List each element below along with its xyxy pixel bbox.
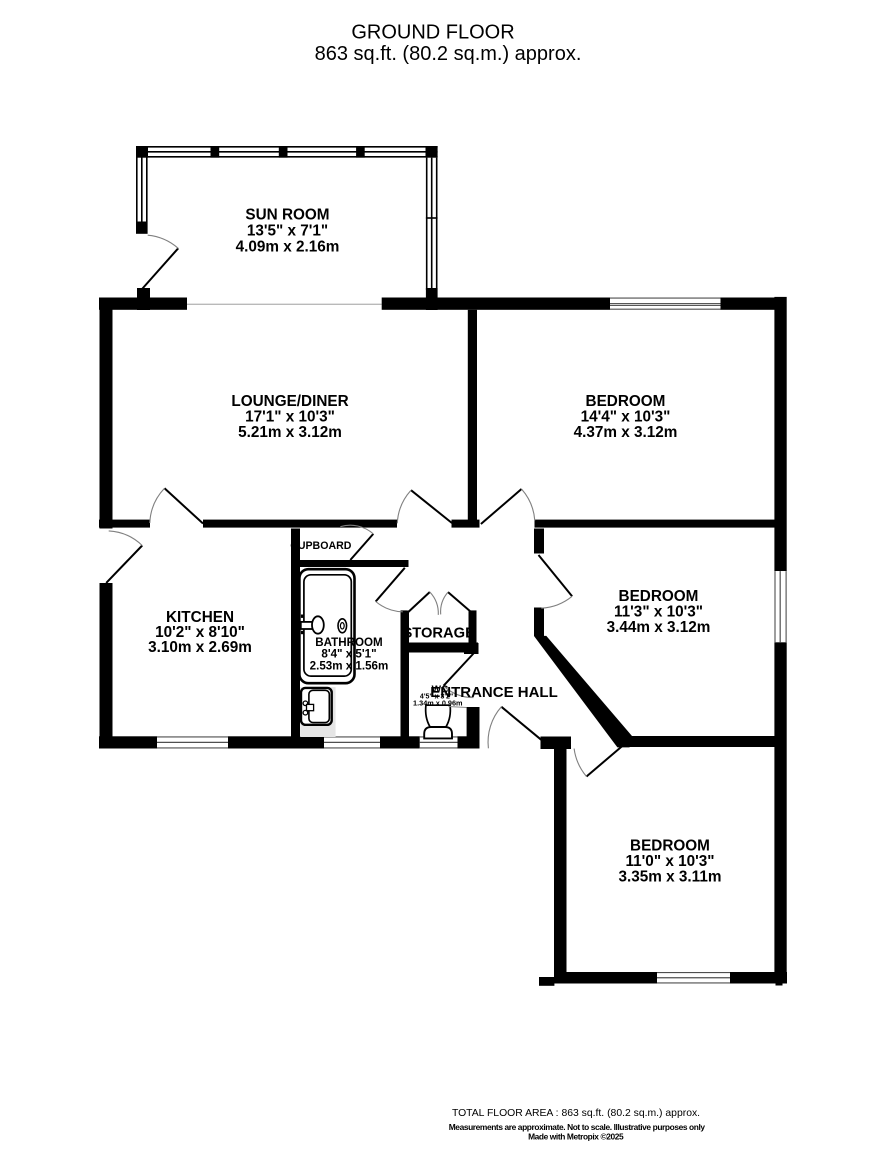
svg-text:STORAGE: STORAGE xyxy=(403,625,476,641)
svg-text:CUPBOARD: CUPBOARD xyxy=(290,540,352,552)
svg-text:11'3" x 10'3": 11'3" x 10'3" xyxy=(614,604,703,621)
svg-text:1.34m x 0.96m: 1.34m x 0.96m xyxy=(413,698,463,707)
svg-text:BEDROOM: BEDROOM xyxy=(630,838,710,855)
svg-text:TOTAL FLOOR AREA : 863 sq.ft.: TOTAL FLOOR AREA : 863 sq.ft. (80.2 sq.m… xyxy=(452,1108,700,1119)
svg-text:3.10m x 2.69m: 3.10m x 2.69m xyxy=(148,639,252,656)
svg-text:BEDROOM: BEDROOM xyxy=(586,393,666,410)
svg-text:3.44m x 3.12m: 3.44m x 3.12m xyxy=(607,619,711,636)
svg-text:BEDROOM: BEDROOM xyxy=(619,588,699,605)
svg-text:14'4" x 10'3": 14'4" x 10'3" xyxy=(581,409,671,426)
svg-text:GROUND FLOOR: GROUND FLOOR xyxy=(351,22,514,44)
svg-text:2.53m x 1.56m: 2.53m x 1.56m xyxy=(310,660,389,673)
svg-text:5.21m x 3.12m: 5.21m x 3.12m xyxy=(238,424,342,441)
svg-text:13'5" x 7'1": 13'5" x 7'1" xyxy=(247,223,328,240)
svg-text:Made with Metropix ©2025: Made with Metropix ©2025 xyxy=(528,1132,624,1142)
svg-text:Measurements are approximate.: Measurements are approximate. Not to sca… xyxy=(449,1122,706,1132)
svg-text:3.35m x 3.11m: 3.35m x 3.11m xyxy=(619,868,722,885)
svg-text:SUN ROOM: SUN ROOM xyxy=(245,207,329,224)
svg-text:4.09m x 2.16m: 4.09m x 2.16m xyxy=(236,239,340,256)
svg-text:17'1" x 10'3": 17'1" x 10'3" xyxy=(245,409,335,426)
svg-text:863 sq.ft. (80.2 sq.m.) approx: 863 sq.ft. (80.2 sq.m.) approx. xyxy=(315,43,582,65)
svg-text:LOUNGE/DINER: LOUNGE/DINER xyxy=(231,393,348,410)
svg-text:4.37m x 3.12m: 4.37m x 3.12m xyxy=(574,424,678,441)
